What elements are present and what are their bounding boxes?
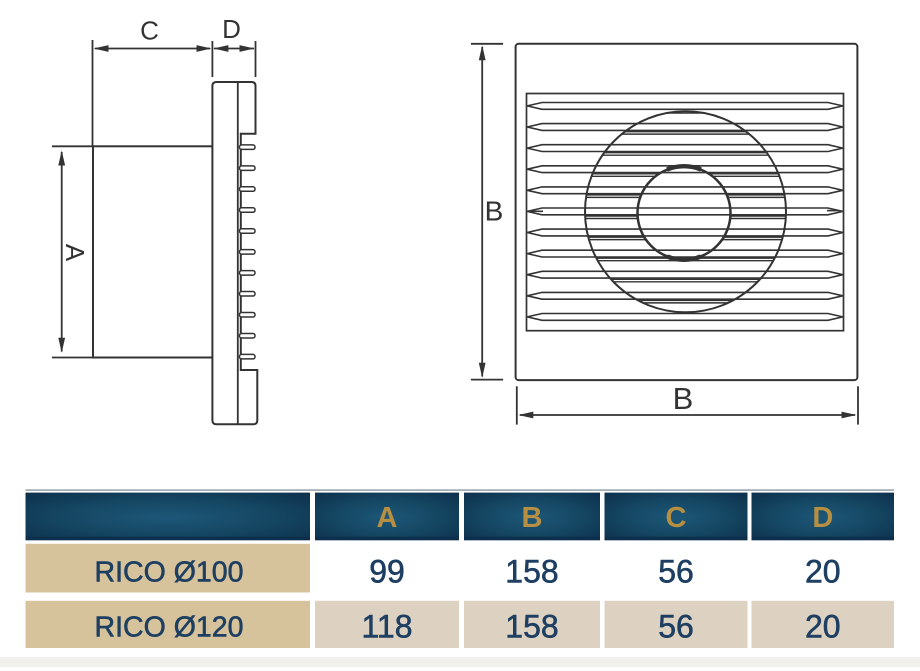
svg-text:A: A [377,502,398,534]
svg-text:118: 118 [361,609,412,645]
svg-text:158: 158 [505,609,558,645]
svg-text:B: B [673,381,694,416]
svg-text:B: B [485,196,504,227]
svg-text:B: B [522,502,543,534]
svg-text:A: A [60,244,90,262]
svg-text:C: C [666,502,687,534]
svg-text:D: D [812,502,833,534]
svg-text:158: 158 [505,553,558,589]
svg-text:56: 56 [658,553,694,589]
svg-text:99: 99 [369,553,405,589]
svg-text:20: 20 [805,553,841,589]
svg-text:RICO Ø100: RICO Ø100 [95,557,244,589]
svg-text:20: 20 [805,609,841,645]
svg-text:D: D [222,14,241,44]
svg-text:56: 56 [658,609,694,645]
svg-text:RICO Ø120: RICO Ø120 [95,612,244,644]
svg-text:C: C [140,16,159,46]
